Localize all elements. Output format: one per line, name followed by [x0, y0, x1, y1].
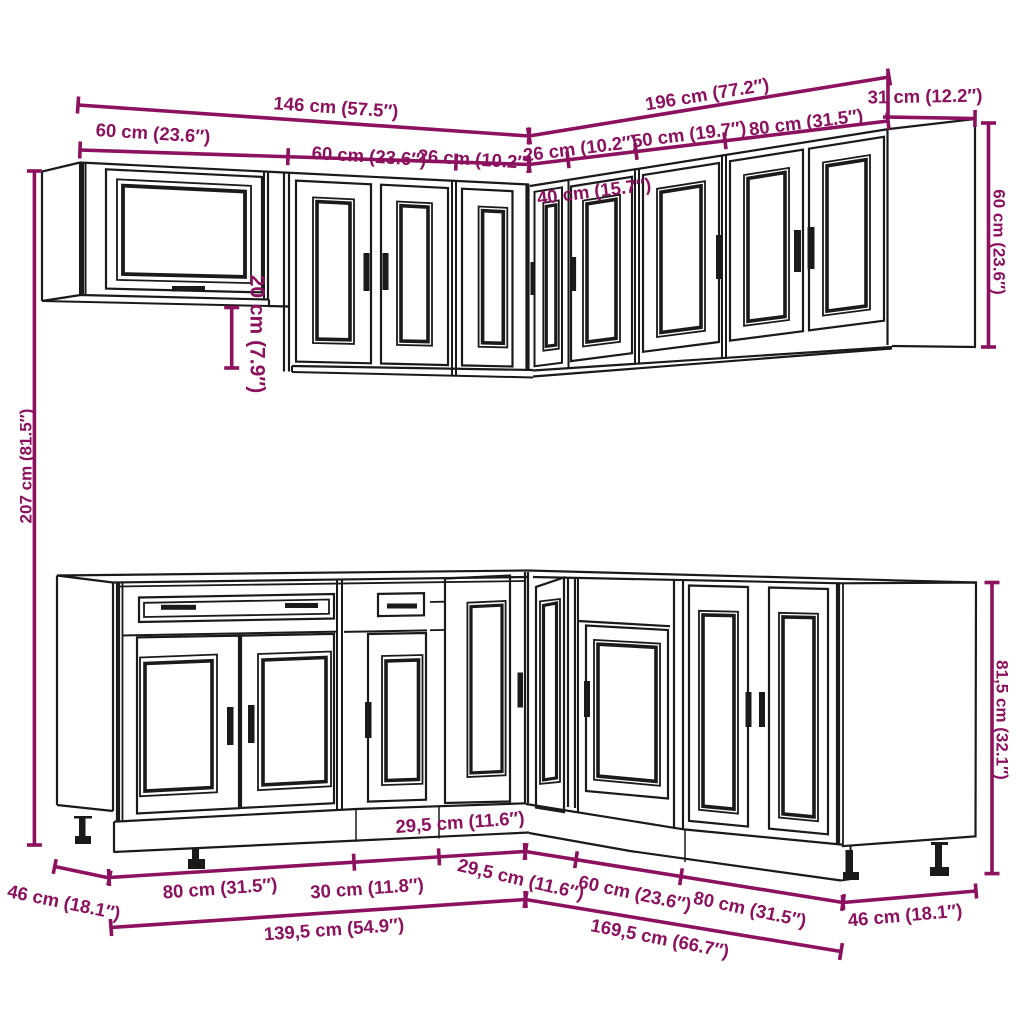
svg-text:31 cm (12.2″): 31 cm (12.2″)	[867, 84, 982, 107]
svg-text:60 cm (23.6″): 60 cm (23.6″)	[990, 189, 1009, 294]
svg-text:20 cm (7.9″): 20 cm (7.9″)	[246, 275, 269, 394]
svg-text:207 cm (81.5″): 207 cm (81.5″)	[17, 409, 36, 524]
svg-text:81,5 cm (32.1″): 81,5 cm (32.1″)	[993, 660, 1012, 780]
